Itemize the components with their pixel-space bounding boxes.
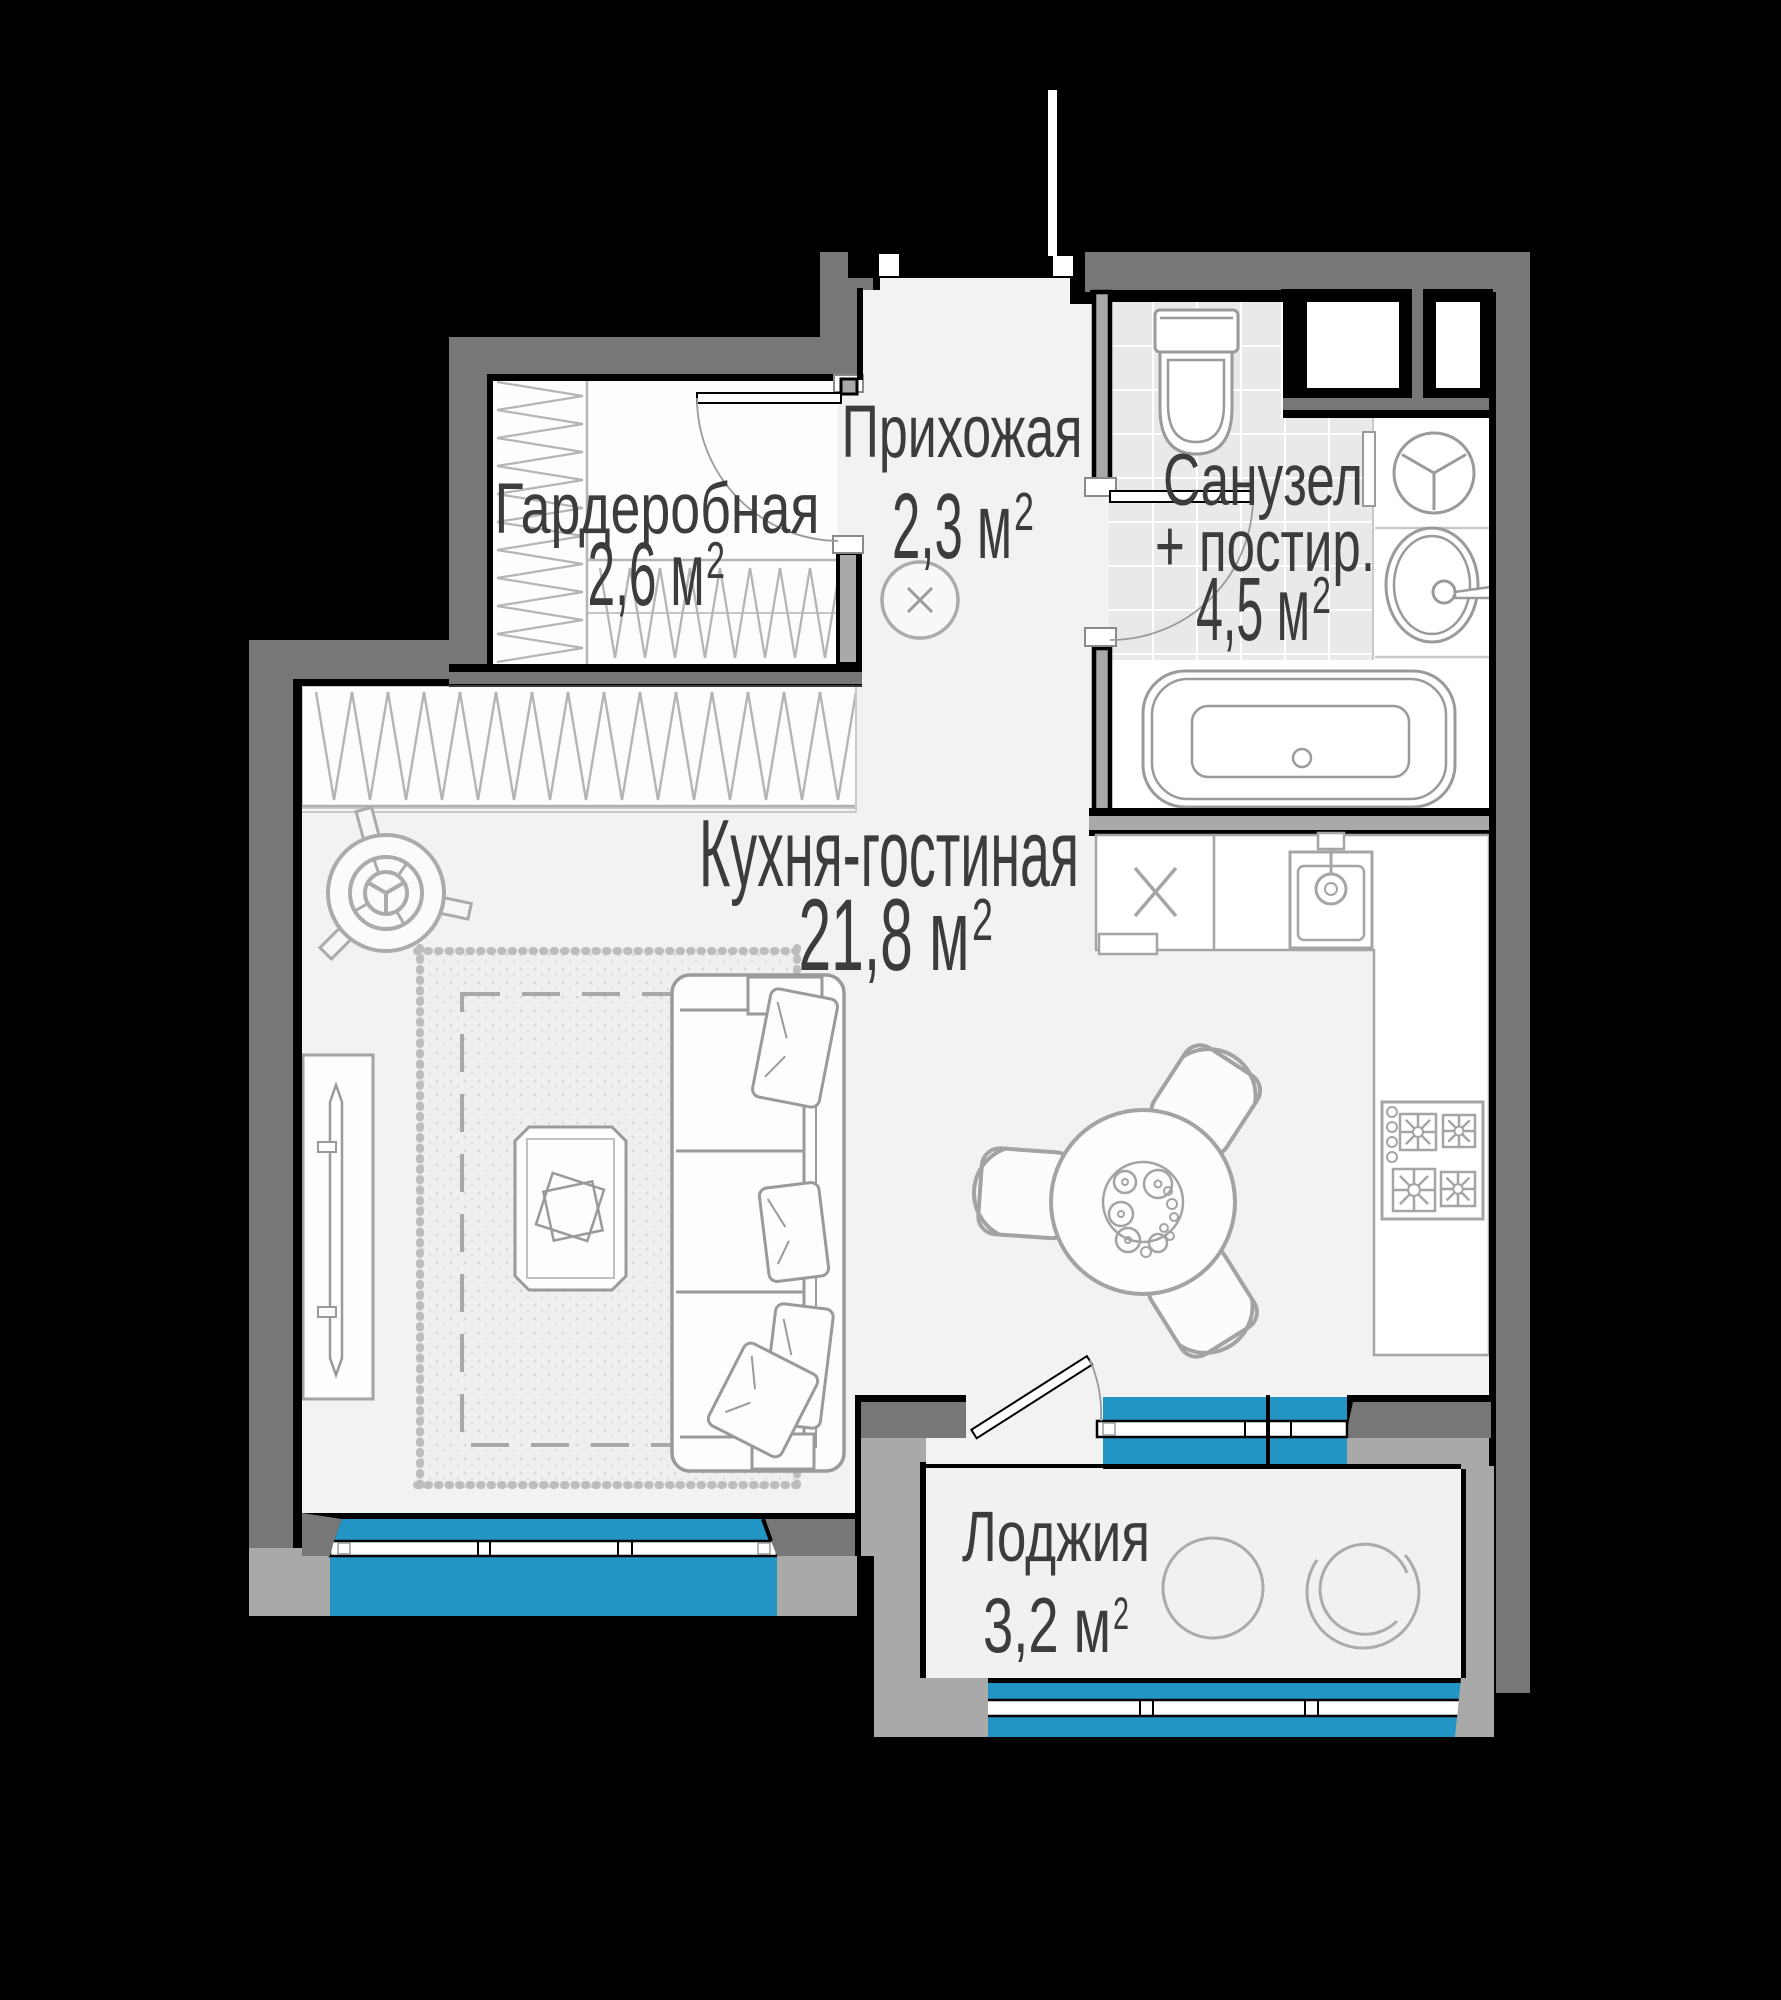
svg-text:2,3 м: 2,3 м bbox=[892, 474, 1012, 578]
svg-text:2: 2 bbox=[972, 887, 993, 953]
svg-text:2,6 м: 2,6 м bbox=[588, 525, 705, 625]
svg-text:2: 2 bbox=[1113, 1588, 1129, 1639]
svg-text:2: 2 bbox=[1014, 482, 1034, 542]
svg-text:2: 2 bbox=[1312, 567, 1331, 625]
svg-text:Прихожая: Прихожая bbox=[842, 390, 1083, 473]
svg-text:3,2 м: 3,2 м bbox=[983, 1581, 1111, 1669]
svg-text:4,5 м: 4,5 м bbox=[1196, 560, 1310, 660]
svg-text:2: 2 bbox=[706, 532, 725, 590]
svg-text:21,8 м: 21,8 м bbox=[799, 878, 970, 992]
svg-text:Лоджия: Лоджия bbox=[962, 1498, 1150, 1577]
